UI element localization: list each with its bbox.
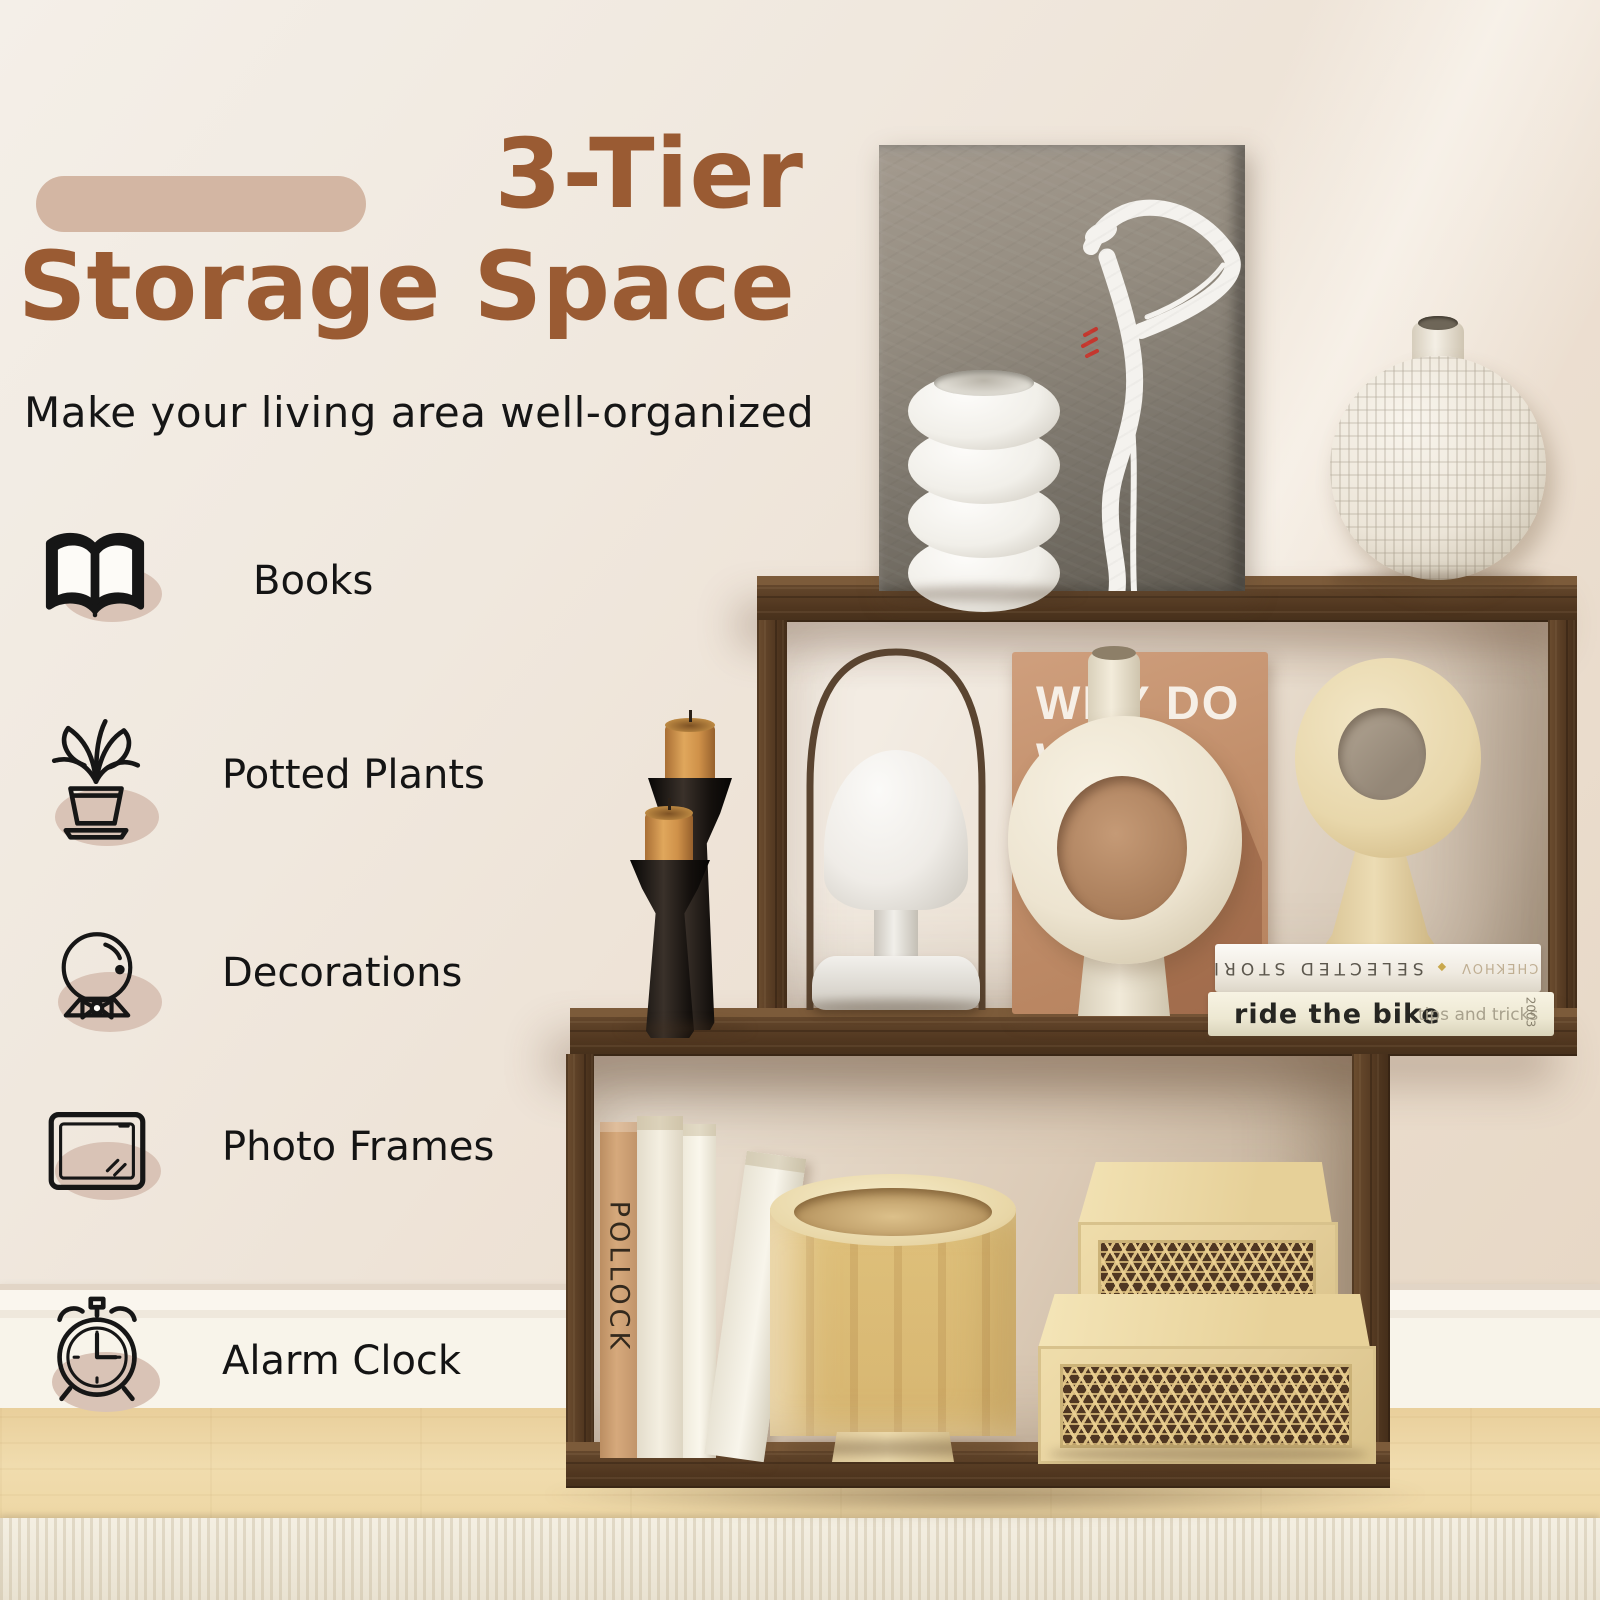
snow-globe-icon <box>45 925 149 1035</box>
white-book <box>637 1116 683 1458</box>
book-title: ride the bike <box>1234 999 1441 1030</box>
small-rattan-box-top <box>1078 1162 1332 1224</box>
title-line1: 3-Tier <box>18 118 804 231</box>
feature-label: Books <box>253 558 373 604</box>
ring-sculpture-hole <box>1338 708 1426 800</box>
book-author: ANTON CHEKHOV <box>1460 961 1541 976</box>
textured-vase-mouth <box>1418 316 1458 330</box>
book-spine-ride-the-bike: ride the bike tips and tricks 2003 <box>1208 992 1554 1036</box>
diamond-ornament-icon: ◆ <box>1438 962 1446 975</box>
book-subtitle: tips and tricks <box>1418 1005 1538 1025</box>
page-title: 3-Tier Storage Space <box>18 118 804 343</box>
title-line2: Storage Space <box>18 231 804 343</box>
planter-opening <box>794 1188 992 1236</box>
pollock-spine-text: POLLOCK <box>603 1200 634 1352</box>
shelf-bottom-left-panel <box>566 1054 594 1450</box>
book-spine-selected-stories: ANTON CHEKHOV ◆ SELECTED STORIES ◆ <box>1215 944 1541 992</box>
subtitle: Make your living area well-organized <box>24 388 844 437</box>
contact-shadow <box>620 1022 750 1036</box>
donut-vase-mouth <box>1092 646 1136 660</box>
textured-vase-pattern <box>1330 356 1546 580</box>
photo-frame-icon <box>45 1108 149 1194</box>
alarm-clock-icon <box>45 1292 149 1414</box>
contact-shadow <box>806 1000 986 1014</box>
rug <box>0 1518 1600 1600</box>
book-title: SELECTED STORIES <box>1215 958 1424 978</box>
product-infographic: 3-Tier Storage Space Make your living ar… <box>0 0 1600 1600</box>
book-year: 2003 <box>1524 997 1538 1028</box>
donut-vase-hole <box>1057 776 1187 920</box>
pollock-book: POLLOCK <box>600 1122 637 1458</box>
feature-label: Potted Plants <box>222 752 485 798</box>
open-book-icon <box>40 530 150 626</box>
feature-label: Alarm Clock <box>222 1338 461 1384</box>
potted-plant-icon <box>38 698 154 842</box>
upside-down-spine-text: ANTON CHEKHOV ◆ SELECTED STORIES ◆ <box>1215 944 1541 992</box>
large-rattan-box-top <box>1038 1294 1370 1348</box>
contact-shadow <box>890 586 1080 602</box>
contact-shadow <box>1330 572 1546 588</box>
short-candlestick <box>630 804 710 1038</box>
shelf-middle-left-panel <box>757 620 787 1012</box>
candle-holder <box>630 860 710 1038</box>
vase-opening <box>934 370 1034 396</box>
contact-shadow <box>1048 1446 1368 1462</box>
shelf-middle-right-panel <box>1548 620 1577 1012</box>
feature-label: Decorations <box>222 950 462 996</box>
wavy-white-vase <box>908 368 1060 598</box>
large-rattan-box-cane-panel <box>1060 1364 1352 1448</box>
contact-shadow <box>780 1440 1020 1456</box>
feature-label: Photo Frames <box>222 1124 494 1170</box>
